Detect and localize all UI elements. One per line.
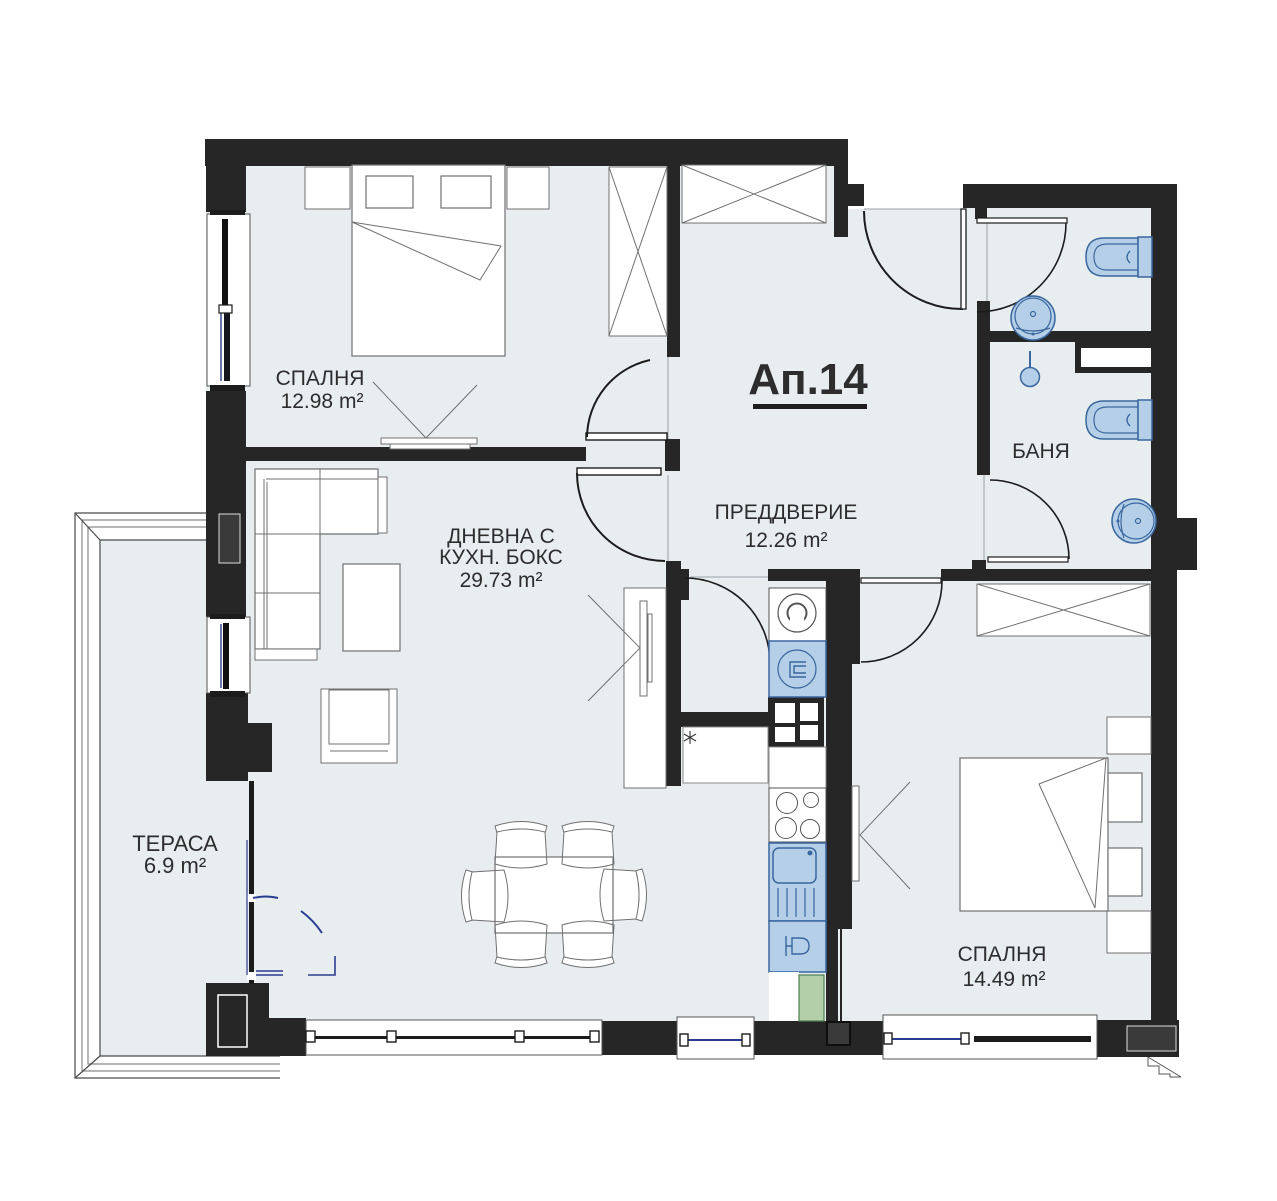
svg-text:6.9 m²: 6.9 m²	[144, 853, 206, 878]
svg-text:БАНЯ: БАНЯ	[1012, 440, 1070, 463]
svg-text:СПАЛНЯ: СПАЛНЯ	[958, 943, 1047, 966]
svg-text:12.98 m²: 12.98 m²	[281, 390, 364, 413]
svg-text:СПАЛНЯ: СПАЛНЯ	[276, 367, 365, 390]
svg-text:КУХН. БОКС: КУХН. БОКС	[439, 546, 563, 569]
svg-text:ПРЕДДВЕРИЕ: ПРЕДДВЕРИЕ	[715, 501, 858, 524]
svg-text:29.73 m²: 29.73 m²	[460, 569, 543, 592]
svg-text:Ап.14: Ап.14	[748, 355, 868, 404]
svg-text:12.26 m²: 12.26 m²	[745, 529, 828, 552]
svg-text:ДНЕВНА С: ДНЕВНА С	[447, 525, 555, 548]
svg-text:14.49 m²: 14.49 m²	[963, 968, 1046, 991]
